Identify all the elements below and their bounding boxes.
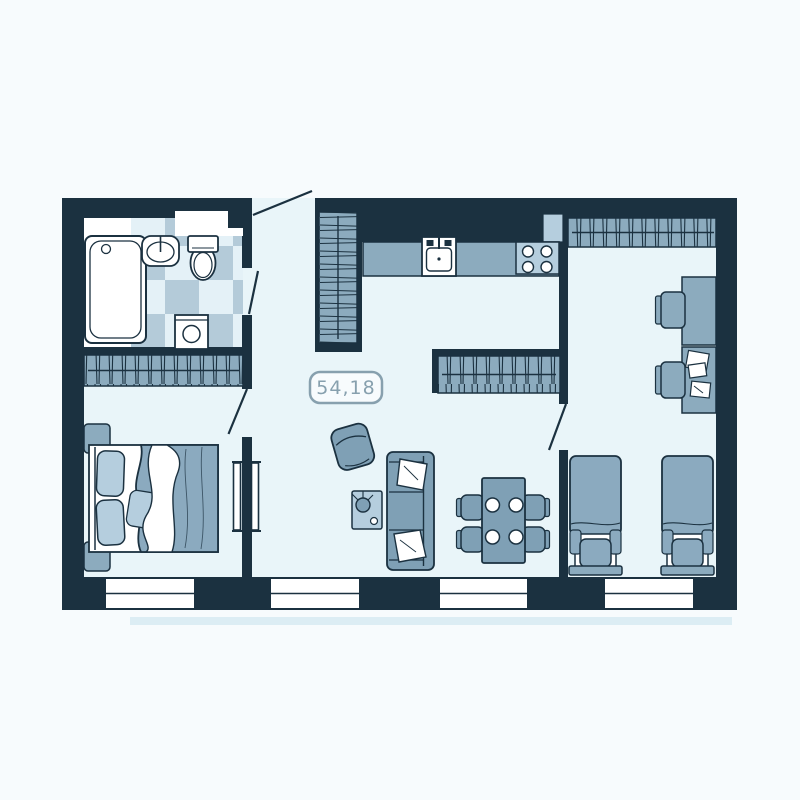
single-bed-2 [661,456,714,575]
dining-chair-rb [522,527,550,552]
bath-bedroom-divider [62,347,252,355]
right-room-wardrobe [568,218,716,247]
plate [509,530,523,544]
hall-wall-a [242,218,252,268]
right-wall [716,198,737,610]
window-4 [604,578,694,609]
kitchen-right-wall-bottom [559,450,568,577]
floor-plan-canvas: 54,18 [0,0,800,800]
plate [486,498,500,512]
coffee-table-with-plant [352,491,382,529]
center-wardrobe-wall [432,349,567,356]
double-bed-symbol [89,445,218,552]
center-wardrobe [438,356,560,393]
window-3 [439,578,528,609]
floor-plan: 54,18 [0,0,800,800]
entrance-threshold [252,198,315,218]
vent-duct [543,214,563,242]
left-wall [62,198,84,610]
washbasin-symbol [142,236,179,266]
dining-table-symbol [482,478,525,563]
washing-machine-symbol [175,315,208,349]
hall-tall-wardrobe [319,212,357,343]
area-label: 54,18 [310,372,382,403]
area-value: 54,18 [316,377,375,399]
headboard [569,566,622,575]
desk-top [682,277,716,345]
window-2 [270,578,360,609]
headboard [661,566,714,575]
pillow [672,539,703,567]
ground-shadow [130,617,732,625]
kitchen-sink-symbol [422,234,456,277]
desk-chair-top [656,292,686,328]
toilet-symbol [188,236,218,280]
cup-icon [371,518,378,525]
pillow-1 [96,451,125,497]
dining-chair-rt [522,495,550,520]
bathtub-symbol [85,236,146,343]
sofa-symbol [387,452,434,570]
plate [486,530,500,544]
pillow-2 [96,499,125,545]
pillow [580,539,611,567]
window-1 [105,578,195,609]
hall-wall-c [242,437,252,577]
dining-chair-lt [457,495,485,520]
bedroom-wardrobe [84,355,243,386]
desk-chair-bottom [656,362,686,398]
stove-4-burners [516,242,559,274]
plate [509,498,523,512]
plant-icon [356,498,370,512]
dining-chair-lb [457,527,485,552]
kitchen-top-wall [362,198,568,242]
sofa-pillow-bottom [394,530,426,562]
single-bed-1 [569,456,622,575]
bath-niche-notch [228,211,243,228]
